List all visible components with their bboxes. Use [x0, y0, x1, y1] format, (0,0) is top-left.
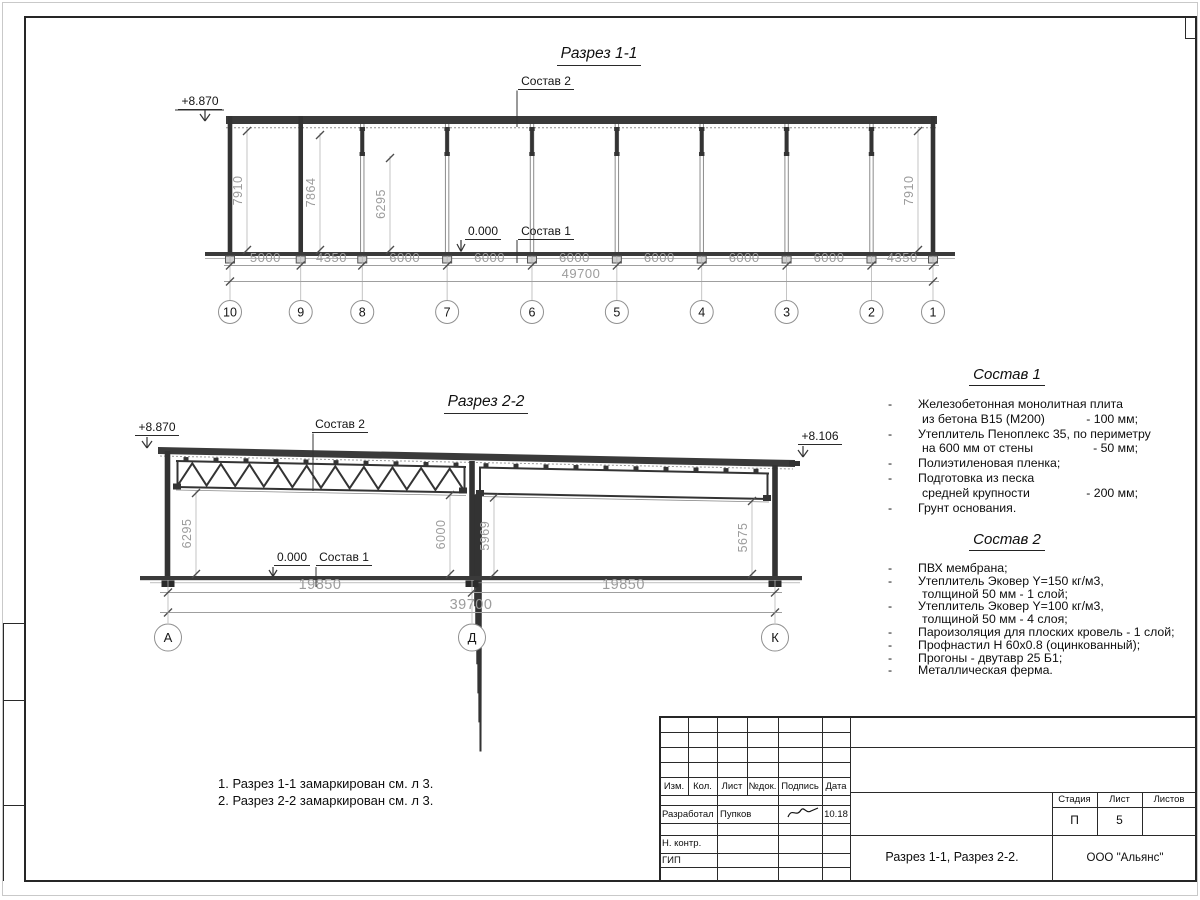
tb-stage-header: Листов: [1142, 794, 1196, 806]
signature-mark: [785, 805, 821, 821]
bullet-dash: -: [888, 600, 892, 613]
roof-slab: [226, 116, 937, 124]
dim-text-vertical: 7864: [304, 178, 318, 208]
total-dim-text: 39700: [450, 597, 493, 613]
title-block-line: [850, 835, 1196, 836]
sostav1-block: Состав 1 -Железобетонная монолитная плит…: [876, 366, 1138, 515]
section2-sostav2-label: Состав 2: [308, 418, 372, 433]
column-splice: [869, 152, 874, 156]
tb-role-cell: ГИП: [662, 855, 717, 867]
section2-title: Разрез 2-2: [430, 393, 542, 414]
axis-bubble-label: 5: [613, 306, 620, 320]
sostav1-title-text: Состав 1: [969, 366, 1045, 386]
tb-header-cell: Подпись: [778, 781, 822, 793]
sostav1-row: -Полиэтиленовая пленка;: [876, 456, 1138, 471]
tb-name-cell: Пупков: [720, 809, 776, 821]
notes: 1. Разрез 1-1 замаркирован см. л 3. 2. Р…: [218, 776, 433, 809]
elevation-arrow: [200, 114, 205, 121]
row-text: Утеплитель Пеноплекс 35, по периметру: [918, 427, 1151, 441]
axis-dim-text: 4350: [316, 250, 347, 265]
roof-band: [158, 447, 795, 467]
row-text: Пароизоляция для плоских кровель - 1 сло…: [918, 625, 1175, 639]
axis-dim-text: 6000: [474, 250, 505, 265]
axis-bubble-label: 1: [930, 306, 937, 320]
bullet-dash: -: [888, 626, 892, 639]
elevation-value: +8.870: [178, 95, 221, 110]
elevation-arrow: [147, 441, 152, 448]
axis-bubble-label: 6: [529, 306, 536, 320]
corner-box-line: [1185, 38, 1196, 39]
tb-role-cell: Н. контр.: [662, 838, 717, 850]
truss-web: [178, 463, 464, 490]
purlin: [634, 466, 639, 470]
column-splice: [360, 127, 365, 131]
sostav2-title-text: Состав 2: [969, 531, 1045, 551]
title-block-line: [850, 747, 1196, 748]
row-text: ПВХ мембрана;: [918, 561, 1008, 575]
span-dim-text: 19850: [299, 577, 342, 593]
tb-header-cell: №док.: [747, 781, 778, 793]
axis-dim-text: 6000: [559, 250, 590, 265]
tb-sheet-value: 5: [1097, 814, 1142, 826]
axis-bubble-label: А: [164, 630, 173, 645]
title-block-line: [822, 717, 823, 881]
elevation-arrow: [803, 450, 808, 457]
axis-dim-text: 6000: [814, 250, 845, 265]
column-splice: [615, 131, 619, 152]
sostav1-row: -Железобетонная монолитная плита: [876, 397, 1138, 412]
tb-header-cell: Лист: [717, 781, 747, 793]
section2-elevation-right: +8.106: [794, 430, 846, 445]
level-value: 0.000: [465, 225, 501, 240]
elevation-value: +8.106: [798, 430, 841, 445]
row-text: средней крупности: [922, 486, 1030, 500]
row-text: Полиэтиленовая пленка;: [918, 456, 1060, 470]
row-value: - 50 мм;: [1093, 441, 1138, 456]
sostav2-title: Состав 2: [876, 531, 1138, 551]
tb-header-cell: Изм.: [660, 781, 688, 793]
bullet-dash: -: [888, 397, 892, 412]
tb-header-cell: Дата: [822, 781, 850, 793]
sostav1-rows: -Железобетонная монолитная плитаиз бетон…: [876, 397, 1138, 515]
sostav1-row: -Подготовка из песка: [876, 471, 1138, 486]
title-block-line: [850, 717, 851, 881]
elevation-arrow: [798, 450, 803, 457]
purlin: [604, 466, 609, 470]
purlin: [484, 463, 489, 467]
tb-header-cell: Кол.: [688, 781, 717, 793]
purlin: [664, 467, 669, 471]
margin-stamp-line: [3, 700, 25, 701]
axis-bubble-label: Д: [468, 630, 477, 645]
sostav2-row: -Пароизоляция для плоских кровель - 1 сл…: [876, 626, 1163, 639]
column-splice: [529, 127, 534, 131]
tb-role-cell: Разработал: [662, 809, 717, 821]
sostav2-block: Состав 2 -ПВХ мембрана;-Утеплитель Экове…: [876, 531, 1138, 677]
label-text: Состав 2: [518, 75, 574, 90]
column-splice: [699, 127, 704, 131]
label-text: Состав 1: [316, 551, 372, 566]
title-block-line: [717, 717, 718, 881]
column-splice: [784, 152, 789, 156]
sostav1-title: Состав 1: [876, 366, 1138, 386]
column-splice: [869, 127, 874, 131]
section1-sostav2-label: Состав 2: [513, 75, 579, 90]
tb-stage-header: Стадия: [1052, 794, 1097, 806]
row-text: на 600 мм от стены: [922, 441, 1033, 455]
bullet-dash: -: [888, 562, 892, 575]
section1-zero-level: 0.000: [461, 225, 505, 240]
row-text: Профнастил Н 60х0.8 (оцинкованный);: [918, 638, 1140, 652]
sostav1-row: из бетона В15 (М200)- 100 мм;: [876, 412, 1138, 427]
dim-text-vertical: 5969: [478, 521, 492, 551]
column-splice: [445, 131, 449, 152]
tb-stage-header: Лист: [1097, 794, 1142, 806]
section2-zero-level: 0.000: [271, 551, 313, 566]
sostav1-row: средней крупности- 200 мм;: [876, 486, 1138, 501]
axis-dim-text: 6000: [644, 250, 675, 265]
label-text: Состав 2: [312, 418, 368, 433]
wall-column: [931, 116, 936, 256]
column-splice: [444, 152, 449, 156]
column-splice: [700, 131, 704, 152]
truss-end-plate: [459, 488, 467, 494]
roof-end-plate: [789, 461, 800, 466]
wall-column: [298, 116, 303, 256]
column-splice: [870, 131, 874, 152]
purlin: [514, 464, 519, 468]
sostav2-row: -Утеплитель Эковер Y=150 кг/м3,: [876, 575, 1163, 588]
margin-stamp-line: [3, 805, 25, 806]
sostav1-row: -Грунт основания.: [876, 501, 1138, 516]
axis-bubble-label: 3: [783, 306, 790, 320]
column-A: [165, 451, 171, 576]
row-text: Железобетонная монолитная плита: [918, 397, 1123, 411]
truss-bottom-chord: [479, 494, 769, 500]
dim-text-vertical: 6295: [180, 519, 194, 549]
axis-bubble-label: 10: [223, 306, 237, 320]
dim-text-vertical: 7910: [231, 176, 245, 206]
elevation-value: +8.870: [135, 421, 178, 436]
column-splice: [360, 152, 365, 156]
row-value: - 200 мм;: [1086, 486, 1138, 501]
section2-sostav1-label: Состав 1: [312, 551, 376, 566]
bullet-dash: -: [888, 471, 892, 486]
sostav2-row: -ПВХ мембрана;: [876, 562, 1163, 575]
label-text: Состав 1: [518, 225, 574, 240]
axis-bubble-label: К: [771, 630, 779, 645]
purlin: [544, 464, 549, 468]
purlin: [574, 465, 579, 469]
column-splice: [785, 131, 789, 152]
column-D: [469, 461, 475, 576]
row-text: Утеплитель Эковер Y=150 кг/м3,: [918, 574, 1104, 588]
title-block-line: [778, 717, 779, 881]
truss-end-plate: [476, 490, 484, 496]
axis-bubble-label: 4: [698, 306, 705, 320]
sostav2-row: -Профнастил Н 60х0.8 (оцинкованный);: [876, 639, 1163, 652]
title-block-line: [1052, 807, 1196, 808]
tb-company: ООО "Альянс": [1054, 852, 1196, 864]
section2-elevation-left: +8.870: [131, 421, 183, 436]
margin-stamp-line: [3, 623, 4, 881]
section1-title: Разрез 1-1: [553, 45, 645, 66]
column-splice: [530, 131, 534, 152]
sostav1-row: на 600 мм от стены- 50 мм;: [876, 441, 1138, 456]
axis-dim-text: 6000: [729, 250, 760, 265]
bullet-dash: -: [888, 501, 892, 516]
section1-dimensions: 5000435060006000600060006000600043504970…: [219, 127, 945, 324]
section1-sostav1-label: Состав 1: [513, 225, 579, 240]
axis-dim-text: 4350: [887, 250, 918, 265]
signature-path: [788, 808, 818, 817]
bullet-dash: -: [888, 639, 892, 652]
margin-stamp-line: [3, 623, 25, 624]
purlin: [724, 468, 729, 472]
purlin: [754, 469, 759, 473]
column-splice: [699, 152, 704, 156]
tb-doc-title: Разрез 1-1, Разрез 2-2.: [852, 851, 1052, 863]
dim-text-vertical: 6295: [374, 189, 388, 219]
axis-bubble-label: 8: [359, 306, 366, 320]
bullet-dash: -: [888, 575, 892, 588]
note-line: 1. Разрез 1-1 замаркирован см. л 3.: [218, 776, 433, 793]
section1-title-text: Разрез 1-1: [557, 45, 642, 66]
column-splice: [614, 127, 619, 131]
span-dim-text: 19850: [602, 577, 645, 593]
total-dim-text: 49700: [562, 266, 601, 281]
row-text: Металлическая ферма.: [918, 663, 1053, 677]
sostav1-row: -Утеплитель Пеноплекс 35, по периметру: [876, 427, 1138, 442]
truss-end-plate: [173, 484, 181, 490]
sostav2-rows: -ПВХ мембрана;-Утеплитель Эковер Y=150 к…: [876, 562, 1163, 677]
sostav2-row: -Металлическая ферма.: [876, 664, 1163, 677]
title-block-line: [850, 792, 1196, 793]
row-text: Грунт основания.: [918, 501, 1016, 515]
floor-slab: [140, 576, 802, 580]
note-line: 2. Разрез 2-2 замаркирован см. л 3.: [218, 793, 433, 810]
bullet-dash: -: [888, 456, 892, 471]
dim-text-vertical: 6000: [434, 520, 448, 550]
tb-date-cell: 10.18: [822, 809, 850, 821]
level-value: 0.000: [274, 551, 310, 566]
corner-box-line: [1185, 18, 1186, 38]
bullet-dash: -: [888, 427, 892, 442]
column-splice: [529, 152, 534, 156]
elevation-arrow: [205, 114, 210, 121]
axis-dim-text: 6000: [389, 250, 420, 265]
column-splice: [360, 131, 364, 152]
dim-text-vertical: 5675: [736, 523, 750, 553]
drawing-sheet: 5000435060006000600060006000600043504970…: [0, 0, 1200, 900]
column-splice: [784, 127, 789, 131]
column-splice: [444, 127, 449, 131]
row-text: из бетона В15 (М200): [922, 412, 1045, 426]
axis-bubble-label: 7: [444, 306, 451, 320]
row-text: Подготовка из песка: [918, 471, 1034, 485]
column-K: [772, 465, 778, 576]
elevation-arrow: [142, 441, 147, 448]
axis-dim-text: 5000: [250, 250, 281, 265]
purlin: [694, 467, 699, 471]
dim-text-vertical: 7910: [902, 176, 916, 206]
axis-bubble-label: 2: [868, 306, 875, 320]
axis-bubble-label: 9: [297, 306, 304, 320]
bullet-dash: -: [888, 664, 892, 677]
section2-title-text: Разрез 2-2: [444, 393, 529, 414]
truss-end-plate: [763, 495, 771, 501]
tb-stage-value: П: [1052, 814, 1097, 826]
row-value: - 100 мм;: [1086, 412, 1138, 427]
column-splice: [614, 152, 619, 156]
section1-elevation-left: +8.870: [174, 95, 226, 110]
